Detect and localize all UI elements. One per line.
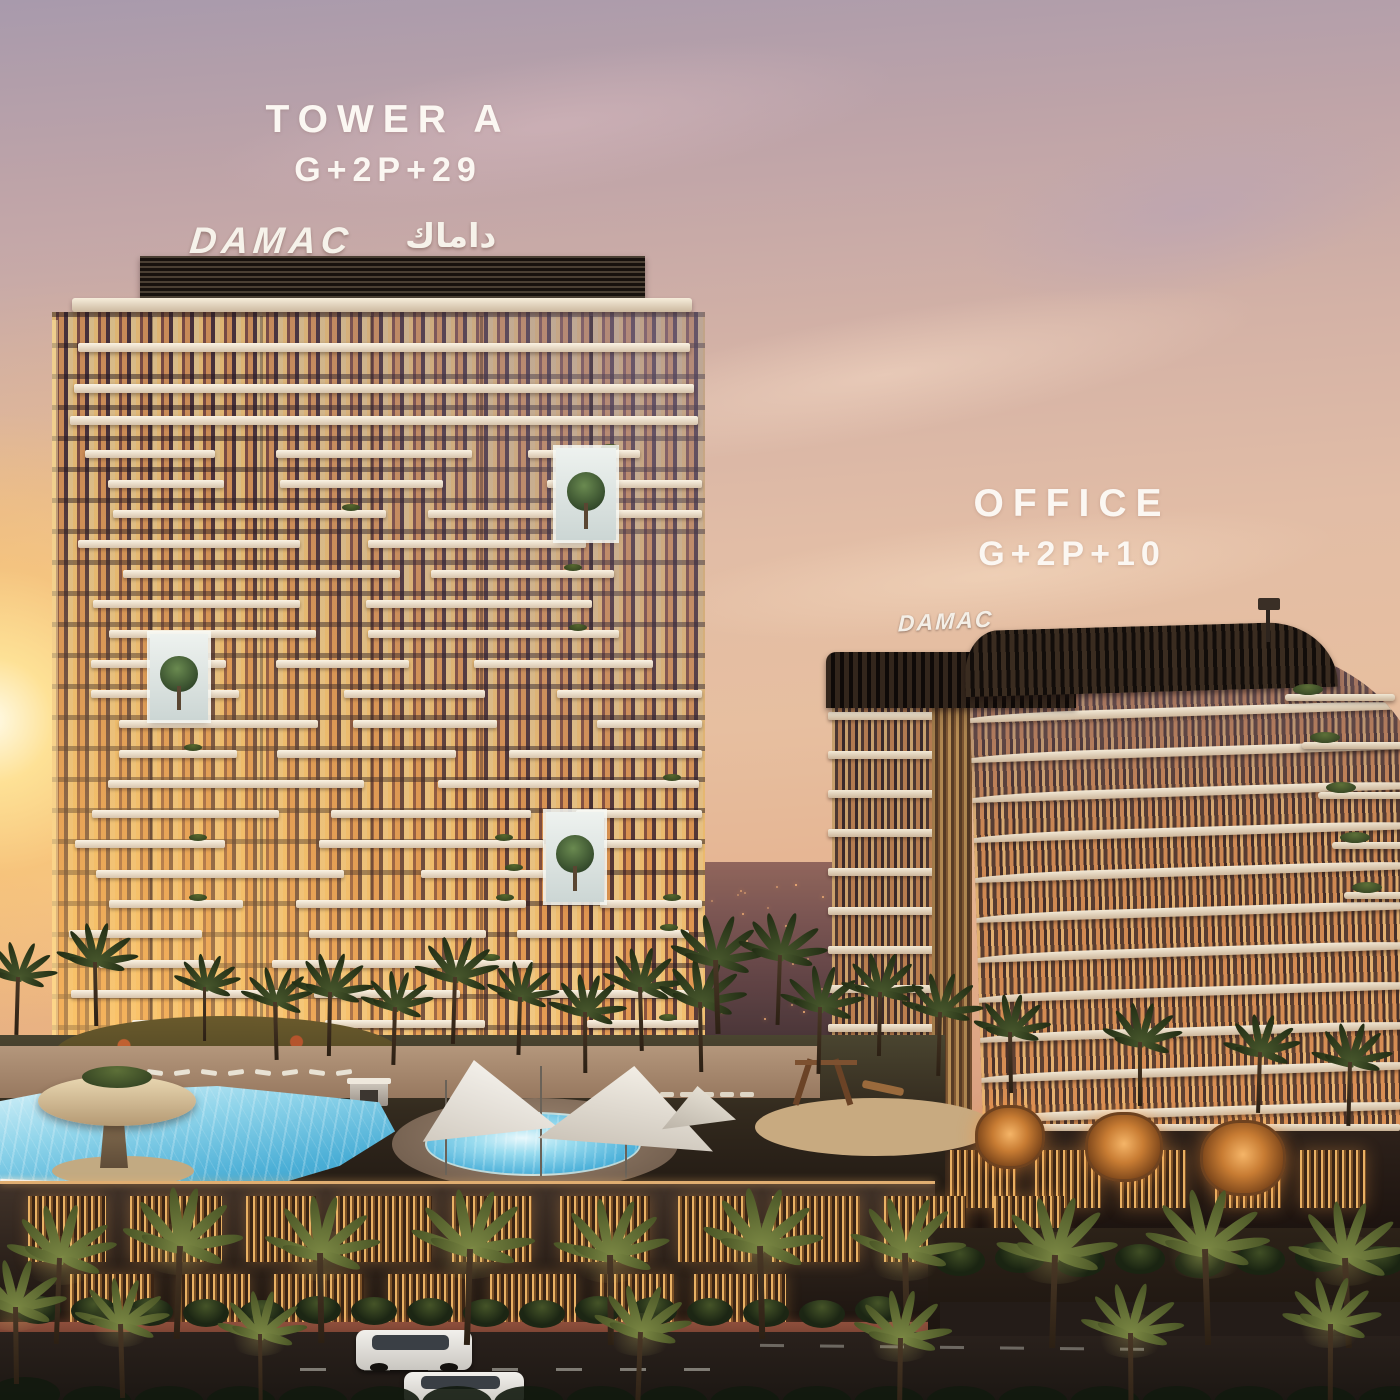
annotation-labels: TOWER A G+2P+29 OFFICE G+2P+10 (0, 0, 1400, 1400)
tower-a-damac-sign: DAMAC داماك (150, 220, 710, 266)
tower-a-label-floors: G+2P+29 (198, 151, 578, 190)
office-label-name: OFFICE (882, 482, 1262, 526)
tower-a-label-name: TOWER A (198, 98, 578, 142)
office-label-floors: G+2P+10 (882, 535, 1262, 574)
office-label: OFFICE G+2P+10 (882, 482, 1262, 574)
tower-a-label: TOWER A G+2P+29 (198, 98, 578, 190)
office-damac-sign: DAMAC (898, 605, 994, 637)
sunset-render: DAMAC داماك DAMAC TOWER A G+2P+29 OFFICE… (0, 0, 1400, 1400)
damac-logo-latin: DAMAC (188, 220, 355, 262)
damac-logo-arabic: داماك (405, 216, 496, 255)
